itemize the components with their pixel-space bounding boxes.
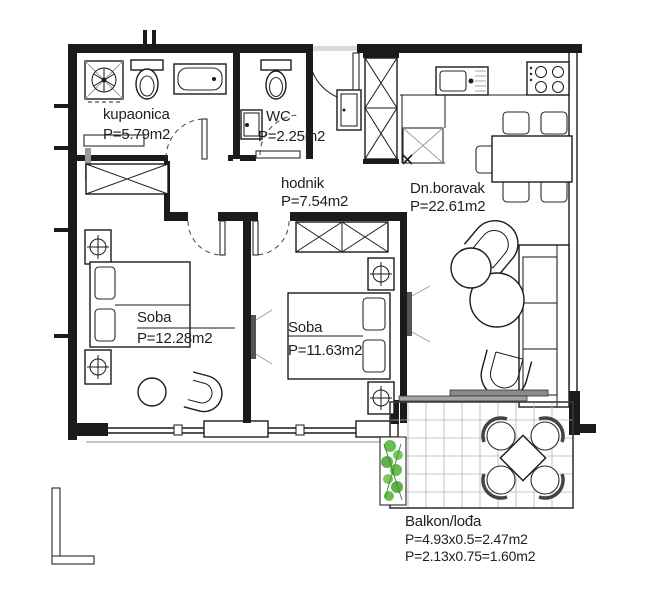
label-soba1: Soba [137, 309, 172, 326]
label-soba1-area: P=12.28m2 [137, 330, 212, 347]
tv-panel [407, 286, 430, 342]
bedroom2-door [253, 221, 289, 255]
balcony [380, 402, 573, 508]
bedroom1-door [188, 221, 225, 255]
label-balkon: Balkon/lođa [405, 513, 482, 530]
toilet [131, 60, 163, 99]
dining-chair [541, 112, 567, 134]
dining-chair [503, 112, 529, 134]
bed [288, 293, 390, 379]
bedroom-window-band [76, 400, 399, 442]
side-table [451, 248, 491, 288]
floor-plan-drawing: kupaonica P=5.79m2 WC P=2.25m2 hodnik P=… [0, 0, 648, 616]
label-hodnik: hodnik [281, 175, 325, 192]
label-kupaonica: kupaonica [103, 106, 170, 123]
label-balkon-area2: P=2.13x0.75=1.60m2 [405, 548, 536, 564]
balcony-table-set [483, 418, 563, 498]
bathtub [174, 64, 226, 94]
small-table [138, 378, 166, 406]
kitchen-sink [436, 67, 488, 95]
bedroom1-wardrobe [86, 164, 168, 194]
bathroom-door [166, 119, 207, 159]
shower [85, 61, 123, 102]
label-wc-area: P=2.25m2 [258, 128, 325, 145]
label-soba2-area: P=11.63m2 [288, 342, 362, 359]
nightstand [368, 258, 394, 290]
kitchen-corner-unit [403, 128, 443, 164]
hallway-furniture [86, 53, 399, 252]
label-hodnik-area: P=7.54m2 [281, 193, 348, 210]
label-balkon-area1: P=4.93x0.5=2.47m2 [405, 531, 528, 547]
tv-panel [251, 310, 272, 364]
sliding-door [399, 390, 548, 401]
living-room [399, 211, 569, 407]
nightstand [85, 230, 111, 264]
desk-chair [184, 372, 226, 416]
entry-cabinet [337, 90, 361, 130]
label-soba2: Soba [288, 319, 323, 336]
wc-toilet [261, 60, 291, 99]
label-boravak-area: P=22.61m2 [410, 198, 485, 215]
bedroom2 [288, 258, 394, 414]
hall-closet [363, 53, 399, 164]
label-wc: WC [266, 108, 291, 125]
dining-chair [541, 180, 567, 202]
planter-plants [380, 437, 406, 505]
floor-plan-page: kupaonica P=5.79m2 WC P=2.25m2 hodnik P=… [0, 0, 648, 616]
stove [527, 62, 569, 95]
dining-chair [503, 180, 529, 202]
dining-set [476, 112, 572, 202]
label-kupaonica-area: P=5.79m2 [103, 126, 170, 143]
label-boravak: Dn.boravak [410, 180, 485, 197]
bedroom2-wardrobe [296, 222, 388, 252]
nightstand [85, 350, 111, 384]
dining-table [492, 136, 572, 182]
